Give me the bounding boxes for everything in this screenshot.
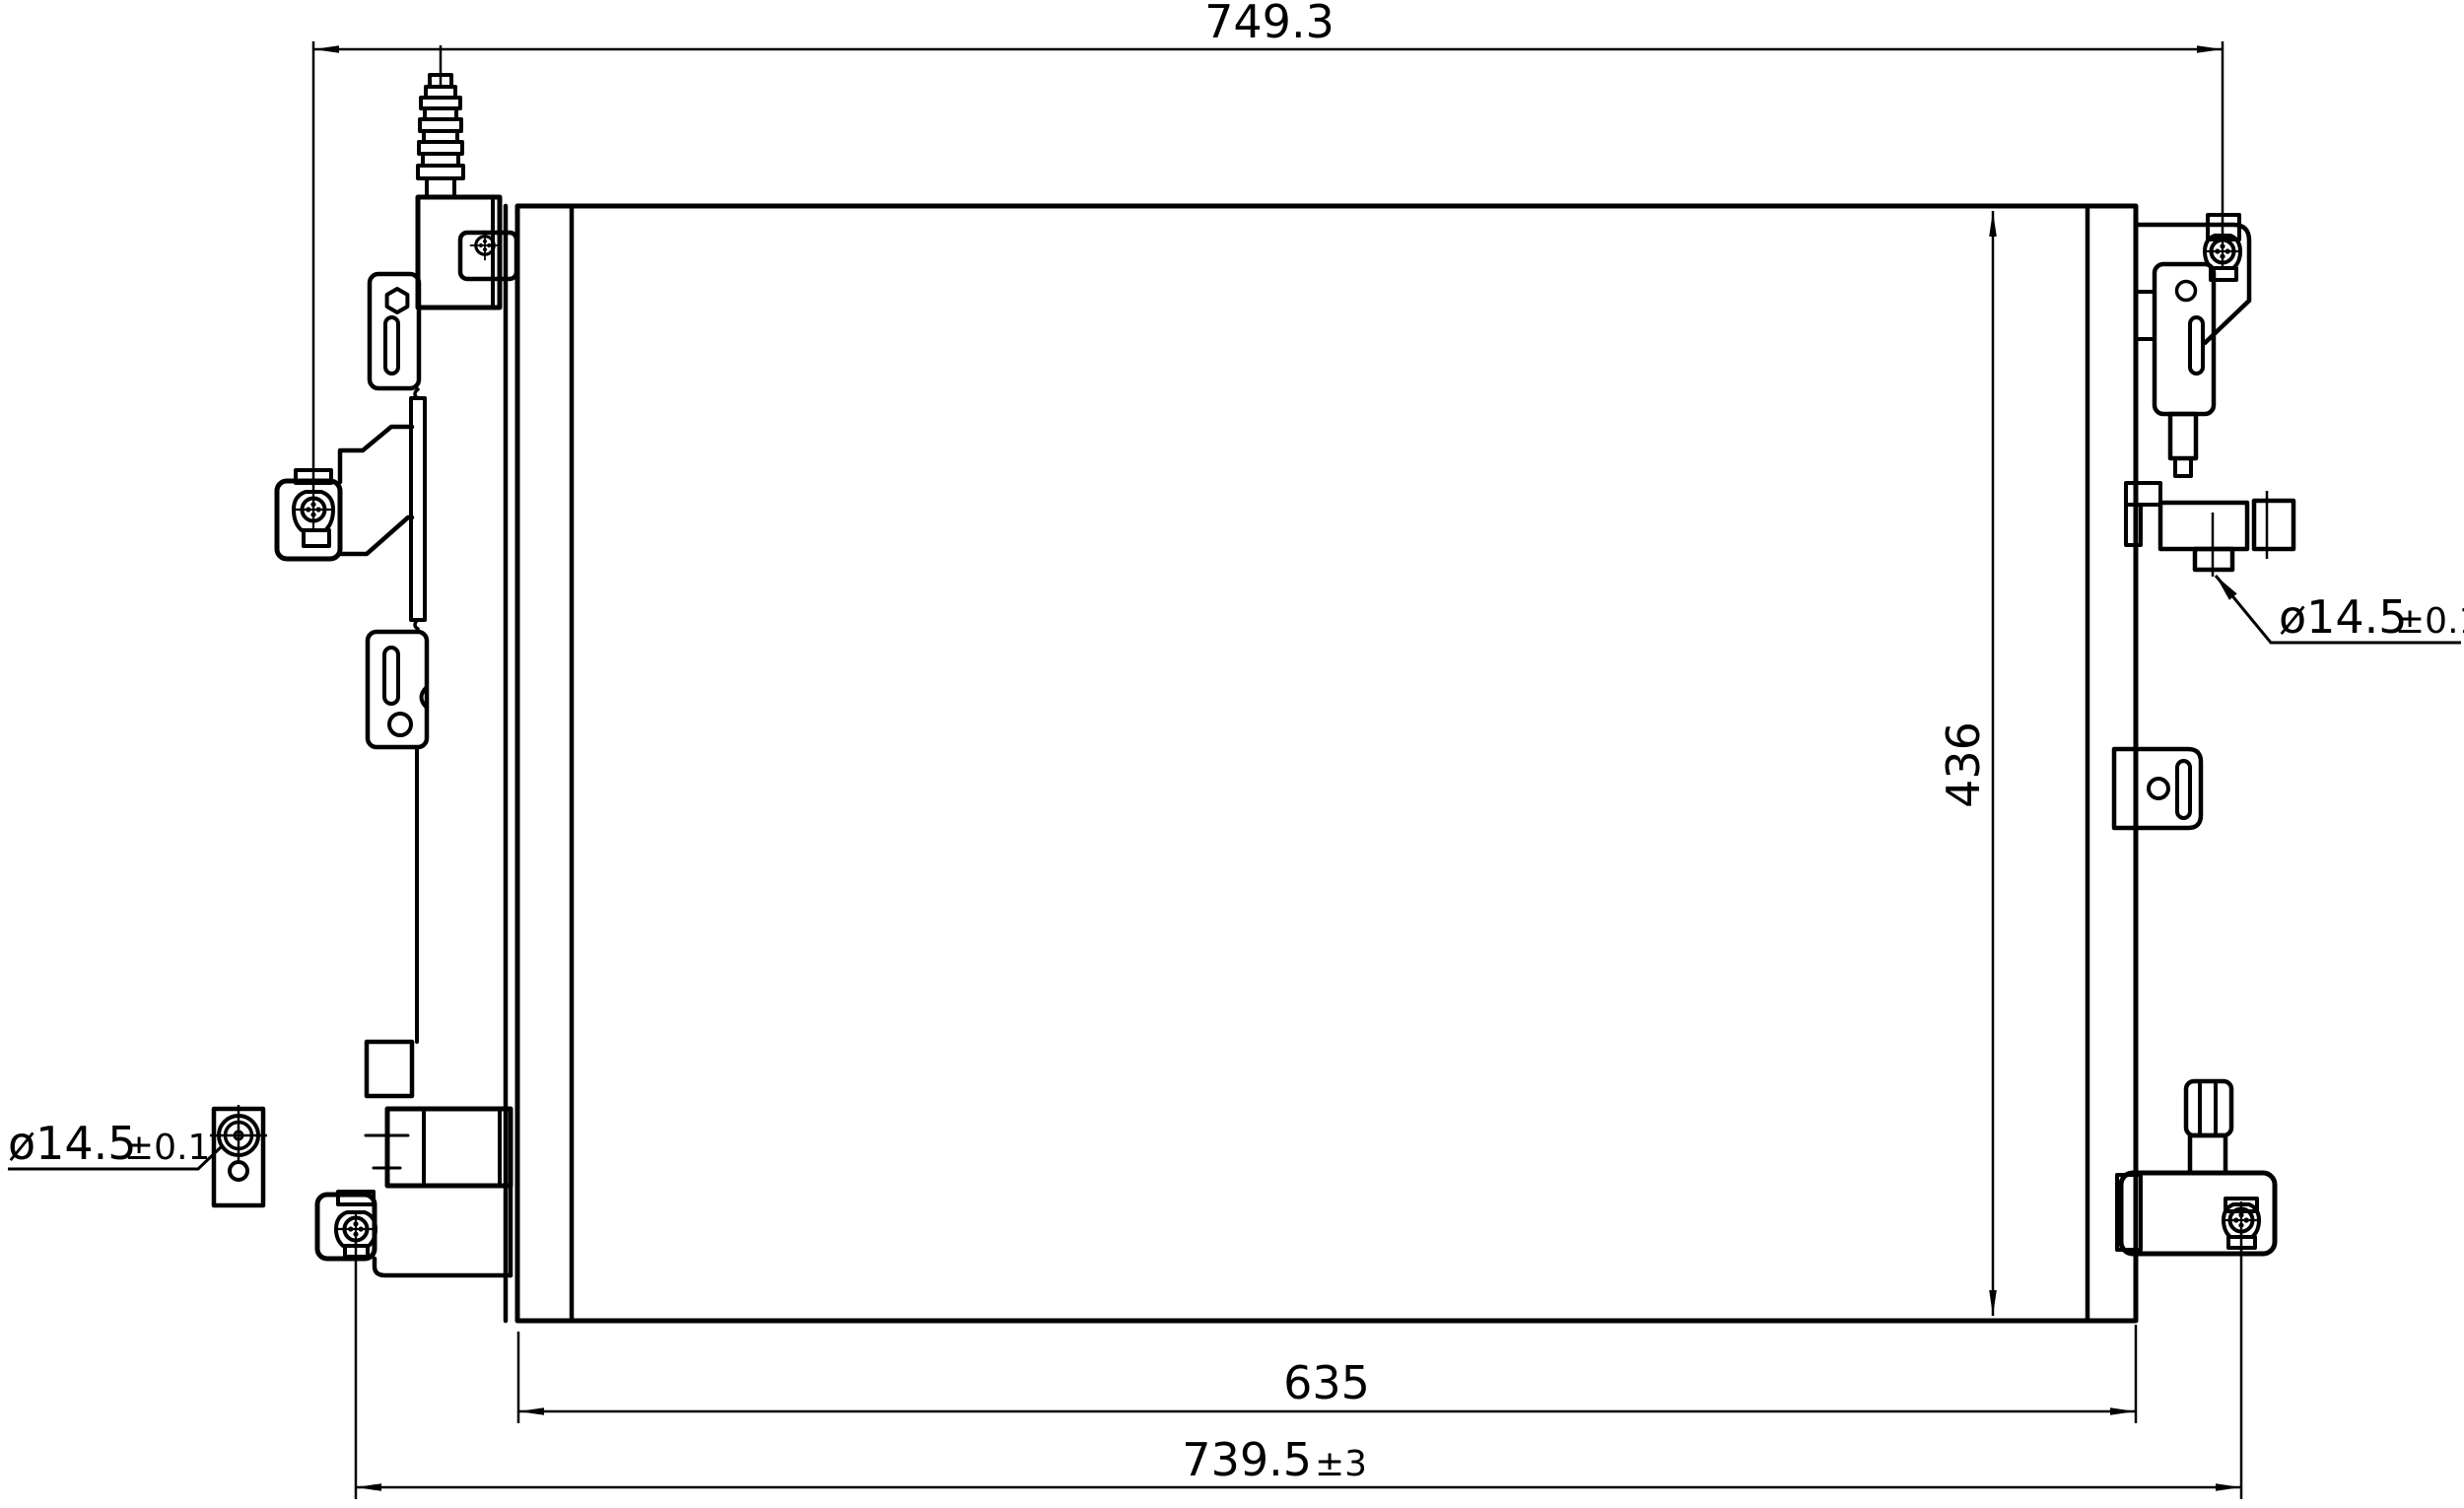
left-port-detail <box>210 1105 267 1205</box>
dim-core-height-label: 436 <box>1937 721 1990 808</box>
lower-connector-block <box>366 1042 511 1186</box>
dim-mounting-width-label: 739.5 <box>1182 1433 1312 1486</box>
slot-hole <box>2190 317 2203 374</box>
condenser-core <box>506 206 2136 1321</box>
round-hole <box>389 714 411 735</box>
callout-left-port-diameter: ø14.5 ±0.1 <box>8 1117 221 1170</box>
left-upper-mount-bracket <box>277 427 412 559</box>
condenser-dimensional-drawing: 749.3 436 635 739.5 ±3 ø14.5 ±0.1 ø14.5 … <box>0 0 2464 1508</box>
lower-mount-plate <box>368 632 427 747</box>
right-port-diameter-tolerance: ±0.1 <box>2395 601 2464 642</box>
right-lower-mount-bracket <box>2117 1081 2275 1254</box>
hex-hole <box>387 289 408 312</box>
left-port-diameter-label: ø14.5 <box>8 1117 137 1170</box>
slot-hole <box>385 317 398 374</box>
top-left-clamp-bracket <box>460 231 516 279</box>
right-port-diameter-label: ø14.5 <box>2279 590 2408 644</box>
left-port-diameter-tolerance: ±0.1 <box>124 1128 210 1168</box>
right-middle-bracket <box>2114 749 2201 828</box>
bottom-port <box>2186 1081 2231 1135</box>
slot-hole <box>384 648 398 704</box>
round-hole <box>2149 779 2168 798</box>
dim-overall-width-label: 749.3 <box>1204 0 1335 48</box>
receiver-drier <box>366 45 516 1186</box>
dim-overall-width: 749.3 <box>313 0 2223 492</box>
dim-core-height: 436 <box>1937 211 1993 1316</box>
clamp-screw <box>470 231 500 260</box>
right-pipe-fitting <box>2126 483 2293 577</box>
slot-hole <box>2177 761 2190 818</box>
dim-core-width: 635 <box>518 1325 2136 1423</box>
round-hole <box>2177 282 2196 301</box>
dim-core-width-label: 635 <box>1283 1356 1370 1409</box>
upper-mount-plate <box>370 274 419 388</box>
dim-mounting-width-tolerance: ±3 <box>1315 1444 1367 1484</box>
top-threaded-port <box>418 45 463 197</box>
left-lower-mount-bracket <box>317 1186 511 1275</box>
callout-right-port-diameter: ø14.5 ±0.1 <box>2216 576 2464 644</box>
technical-drawing-page: 749.3 436 635 739.5 ±3 ø14.5 ±0.1 ø14.5 … <box>0 0 2464 1508</box>
right-upper-mount-bracket <box>2136 215 2249 476</box>
